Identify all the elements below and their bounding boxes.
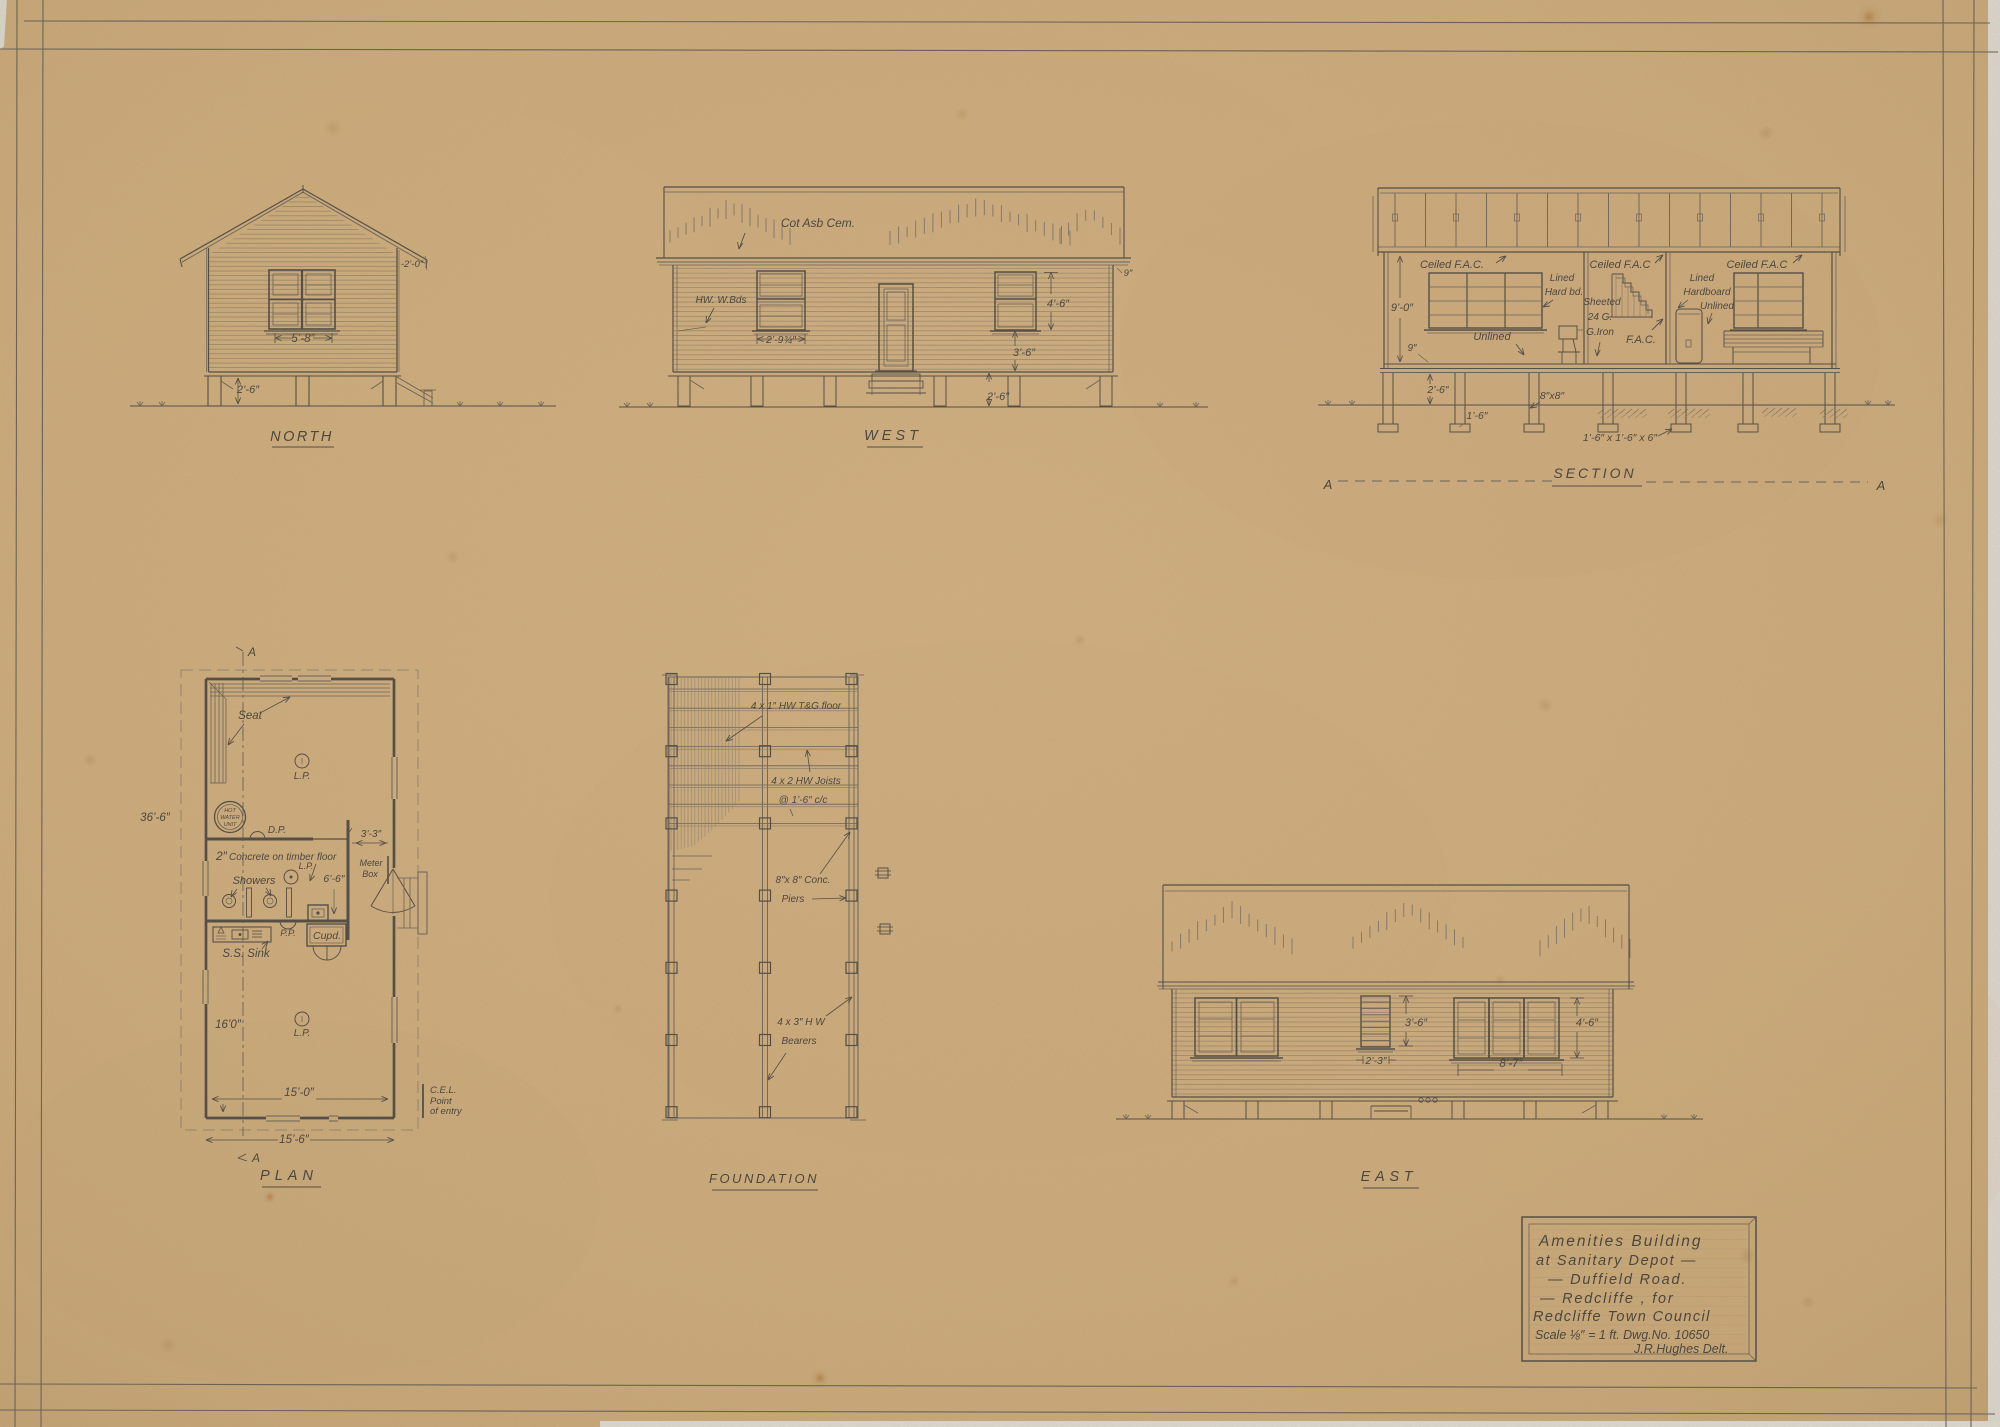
svg-text:9″: 9″ [1407,343,1417,354]
svg-text:15’-0″: 15’-0″ [284,1087,315,1099]
svg-text:P.P.: P.P. [280,928,296,939]
svg-text:of entry: of entry [430,1106,463,1117]
svg-text:Unlined: Unlined [1473,331,1511,343]
svg-text:Box: Box [362,869,378,879]
svg-text:L.P.: L.P. [299,861,314,871]
svg-text:9’-0″: 9’-0″ [1391,302,1414,314]
svg-text:Ceiled F.A.C.: Ceiled F.A.C. [1420,259,1484,271]
svg-text:S.S. Sink: S.S. Sink [222,948,271,960]
svg-text:6’-6″: 6’-6″ [323,873,346,885]
svg-text:Piers: Piers [782,894,805,905]
svg-text:4 x 2 HW Joists: 4 x 2 HW Joists [771,776,840,787]
svg-text:FOUNDATION: FOUNDATION [709,1171,819,1186]
svg-text:4’-6″: 4’-6″ [1047,298,1070,310]
svg-text:8’-7″: 8’-7″ [1499,1058,1523,1070]
svg-text:Ceiled F.A.C: Ceiled F.A.C [1590,259,1651,271]
svg-text:Redcliffe Town Council: Redcliffe Town Council [1533,1309,1711,1325]
svg-text:SECTION: SECTION [1553,465,1636,481]
svg-text:Ceiled F.A.C: Ceiled F.A.C [1727,259,1788,271]
svg-text:Meter: Meter [359,858,383,868]
svg-text:5’-8″: 5’-8″ [291,333,315,345]
svg-text:8″x8″: 8″x8″ [1540,390,1566,402]
svg-text:Amenities Building: Amenities Building [1538,1233,1703,1250]
svg-text:36’-6″: 36’-6″ [140,812,171,824]
svg-text:NORTH: NORTH [270,429,334,445]
svg-text:J.R.Hughes Delt.: J.R.Hughes Delt. [1633,1342,1728,1356]
svg-text:HW. W.Bds: HW. W.Bds [696,295,747,306]
svg-text:2’-3″: 2’-3″ [1364,1055,1388,1067]
svg-text:UNIT: UNIT [224,822,237,828]
svg-text:1’-6″: 1’-6″ [1466,410,1489,422]
svg-text:— Duffield Road.: — Duffield Road. [1547,1272,1687,1288]
svg-text:4 x 1″ HW T&G floor: 4 x 1″ HW T&G floor [751,701,842,712]
svg-text:4 x 3″ H W: 4 x 3″ H W [777,1017,826,1028]
svg-text:L.P.: L.P. [294,1028,311,1039]
svg-text:2’-9¾″: 2’-9¾″ [765,334,797,346]
svg-text:Unlined: Unlined [1700,301,1734,312]
svg-text:Concrete on timber floor: Concrete on timber floor [229,852,337,863]
svg-text:— Redcliffe , for: — Redcliffe , for [1539,1291,1675,1307]
svg-text:L.P.: L.P. [294,771,311,782]
svg-text:Hardboard: Hardboard [1683,287,1731,298]
svg-text:at Sanitary Depot —: at Sanitary Depot — [1536,1253,1697,1269]
svg-text:WATER: WATER [220,815,239,821]
svg-text:A: A [1323,477,1333,492]
svg-text:2’-6″: 2’-6″ [986,391,1010,403]
svg-text:PLAN: PLAN [260,1168,318,1184]
svg-text:C.E.L.: C.E.L. [430,1085,456,1096]
svg-text:1’-6″ x 1’-6″ x 6″: 1’-6″ x 1’-6″ x 6″ [1583,432,1658,444]
svg-text:Hard bd.: Hard bd. [1545,287,1583,298]
svg-text:A: A [1876,478,1886,493]
svg-text:Cupd.: Cupd. [313,930,341,942]
svg-text:A: A [251,1151,260,1165]
svg-text:EAST: EAST [1361,1169,1418,1185]
svg-text:HOT: HOT [224,808,236,814]
svg-text:4’-6″: 4’-6″ [1576,1017,1599,1029]
svg-text:WEST: WEST [864,428,922,444]
svg-text:G.Iron: G.Iron [1586,327,1614,338]
svg-text:F.A.C.: F.A.C. [1626,334,1656,346]
svg-text:Bearers: Bearers [781,1036,816,1047]
svg-text:A: A [247,645,256,659]
svg-text:Seat: Seat [238,710,262,722]
svg-text:2’-6″: 2’-6″ [1426,384,1450,396]
svg-text:24 G.: 24 G. [1587,312,1612,323]
svg-text:Sheeted: Sheeted [1583,297,1621,308]
svg-text:2″: 2″ [215,849,228,863]
svg-text:3’-6″: 3’-6″ [1405,1017,1428,1029]
svg-text:2’-6″: 2’-6″ [236,384,260,396]
svg-text:15’-6″: 15’-6″ [279,1134,310,1146]
svg-text:3’-6″: 3’-6″ [1013,347,1036,359]
svg-text:D.P.: D.P. [268,825,286,836]
svg-text:Lined: Lined [1690,273,1715,284]
svg-text:16’0″: 16’0″ [215,1019,242,1031]
svg-text:Lined: Lined [1550,273,1575,284]
svg-text:3’-3″: 3’-3″ [361,829,382,840]
svg-text:Showers: Showers [233,875,276,887]
svg-text:Cot Asb Cem.: Cot Asb Cem. [781,216,855,230]
svg-text:@ 1’-6″ c/c: @ 1’-6″ c/c [779,795,828,806]
svg-text:-2’-0″: -2’-0″ [401,259,424,270]
svg-text:9″: 9″ [1124,268,1133,279]
svg-text:Scale ⅛″ = 1 ft. Dwg.No. 1065: Scale ⅛″ = 1 ft. Dwg.No. 10650 [1535,1328,1709,1342]
svg-text:8″x 8″ Conc.: 8″x 8″ Conc. [776,875,831,886]
